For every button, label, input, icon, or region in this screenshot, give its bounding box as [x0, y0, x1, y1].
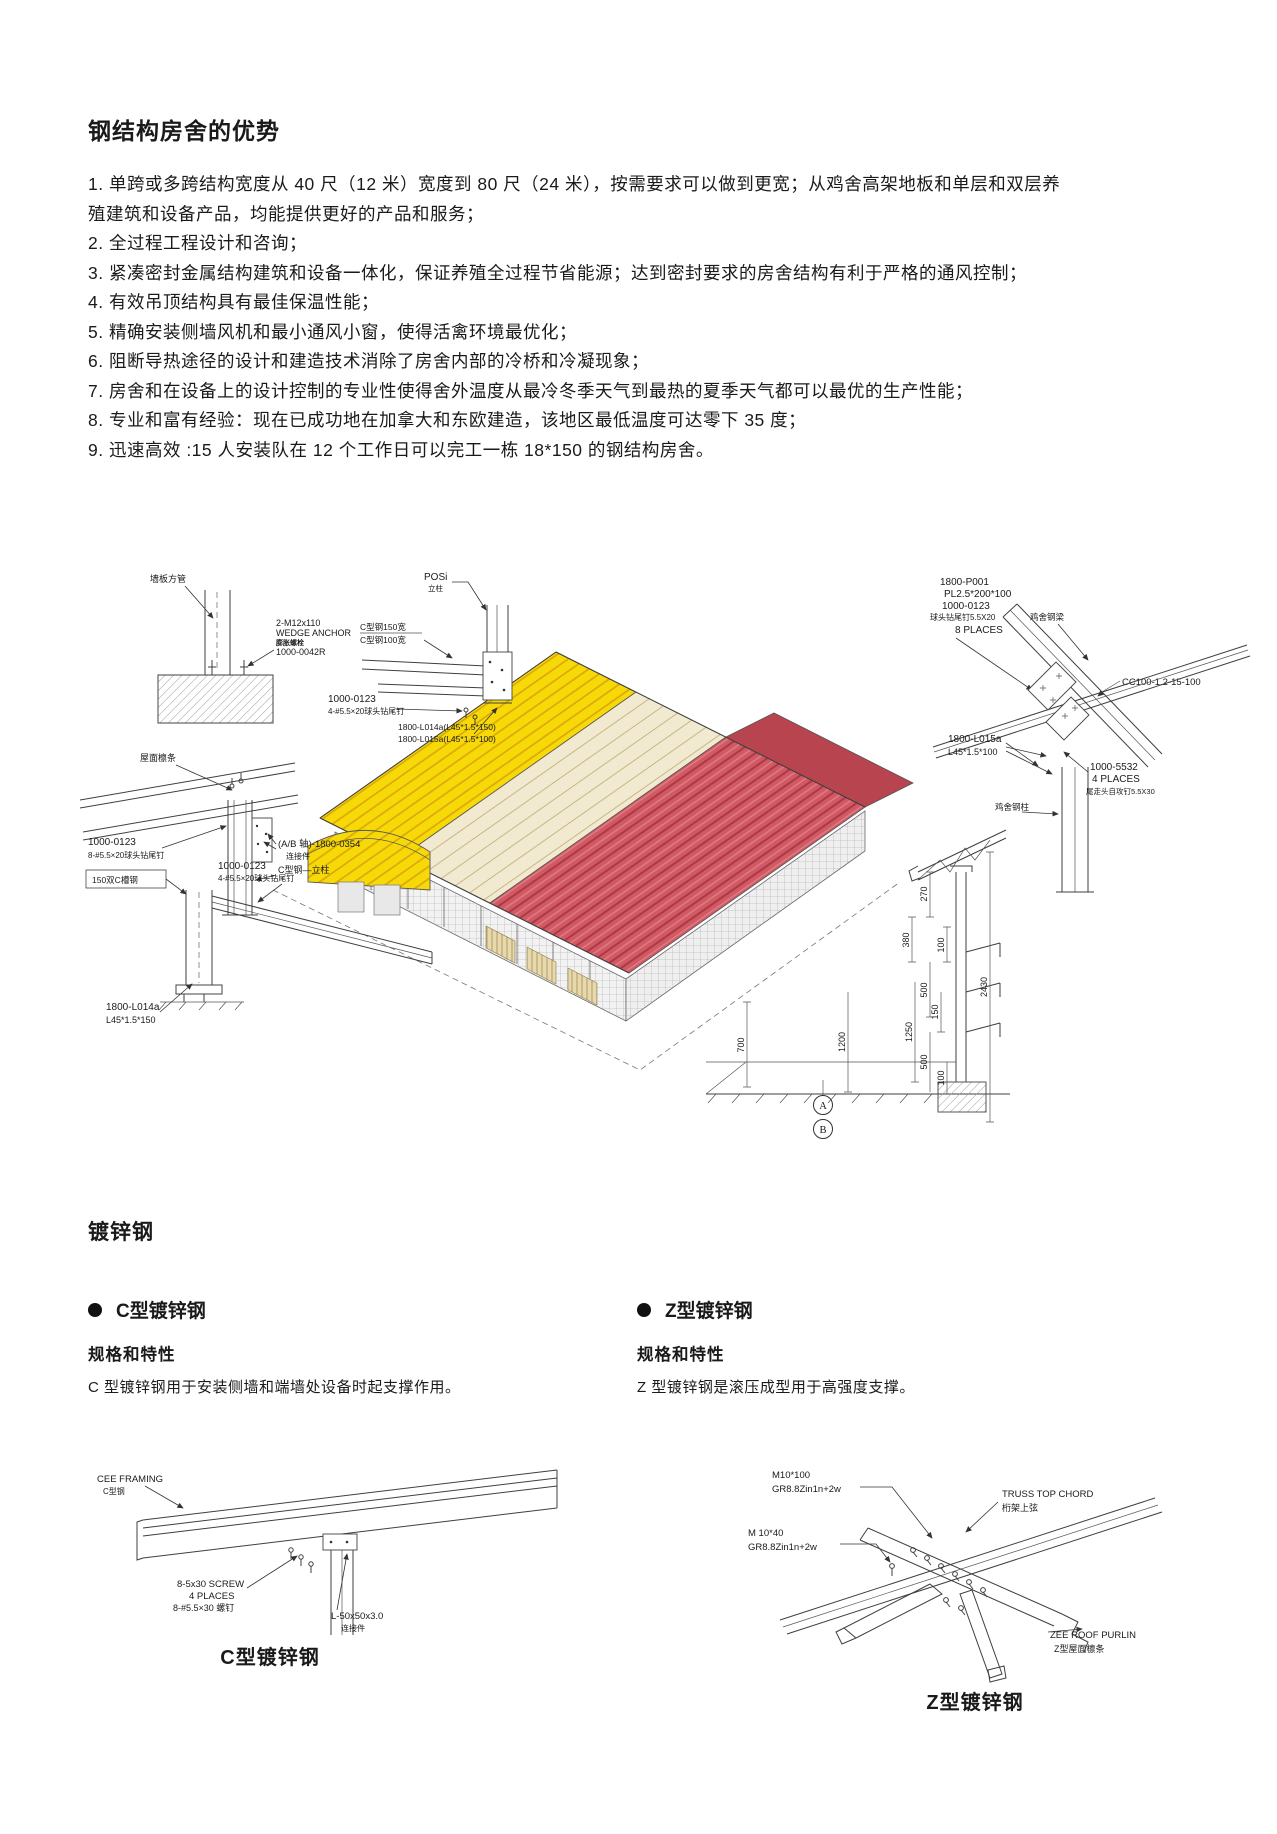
- advantage-item: 7. 房舍和在设备上的设计控制的专业性使得舍外温度从最冷冬季天气到最热的夏季天气…: [88, 377, 1066, 407]
- advantage-item: 3. 紧凑密封金属结构建筑和设备一体化，保证养殖全过程节省能源；达到密封要求的房…: [88, 259, 1066, 289]
- svg-text:A: A: [819, 1101, 827, 1112]
- label-house-column: 鸡舍钢柱: [995, 802, 1030, 812]
- svg-text:4-#5.5×20球头钻尾钉: 4-#5.5×20球头钻尾钉: [218, 873, 294, 883]
- svg-text:B: B: [819, 1125, 826, 1136]
- label-screw-2: 1000-0123: [88, 837, 136, 848]
- advantage-item: 5. 精确安装侧墙风机和最小通风小窗，使得活禽环境最优化；: [88, 318, 1066, 348]
- label-wedge-anchor: 2-M12x110: [276, 618, 320, 628]
- label-roof-purlin: 屋面檩条: [140, 752, 176, 763]
- c-spec-text: C 型镀锌钢用于安装侧墙和端墙处设备时起支撑作用。: [88, 1376, 608, 1397]
- svg-text:100: 100: [936, 1070, 946, 1085]
- label-m10-40: M 10*40: [748, 1528, 783, 1539]
- c-type-drawing: CEE FRAMING C型钢 8-5x30 SCREW 4 PLACES 8-…: [85, 1430, 645, 1660]
- svg-text:C型钢: C型钢: [103, 1486, 125, 1496]
- svg-text:380: 380: [901, 932, 911, 947]
- svg-text:4-#5.5×20球头钻尾钉: 4-#5.5×20球头钻尾钉: [328, 706, 404, 716]
- advantage-item: 1. 单跨或多跨结构宽度从 40 尺（12 米）宽度到 80 尺（24 米），按…: [88, 170, 1066, 229]
- svg-text:270: 270: [919, 886, 929, 901]
- anchor-bolts: [208, 660, 248, 675]
- z-type-title: Z型镀锌钢: [637, 1296, 753, 1323]
- svg-text:1000-0042R: 1000-0042R: [276, 647, 326, 657]
- label-c-screw: 8-5x30 SCREW: [177, 1579, 244, 1590]
- purlin-column-detail: 屋面檩条 1000-0123 8-#5.5×20球头钻尾钉 (A/B 轴)-18…: [80, 752, 360, 915]
- label-posi: POSi: [424, 572, 447, 583]
- label-cc100: CC100-1.2-15-100: [1122, 677, 1201, 688]
- z-spec-text: Z 型镀锌钢是滚压成型用于高强度支撑。: [637, 1376, 1157, 1397]
- svg-text:700: 700: [736, 1037, 746, 1052]
- label-screw-3: 1000-0123: [218, 861, 266, 872]
- svg-text:L45*1.5*150: L45*1.5*150: [106, 1015, 156, 1025]
- svg-text:GR8.8Zin1n+2w: GR8.8Zin1n+2w: [772, 1484, 841, 1495]
- label-c150: C型钢150宽: [360, 622, 406, 632]
- label-m10-100: M10*100: [772, 1470, 810, 1481]
- svg-text:L45*1.5*100: L45*1.5*100: [948, 747, 998, 757]
- label-ab-connector: (A/B 轴)-1800-0354: [278, 838, 360, 850]
- dimension-labels: 270 380 100 500 150 1250 1200 500 100 24…: [736, 886, 989, 1085]
- svg-text:立柱: 立柱: [428, 583, 443, 593]
- svg-text:4 PLACES: 4 PLACES: [1092, 774, 1140, 785]
- screw-symbols: [289, 1548, 313, 1573]
- svg-text:连接件: 连接件: [341, 1623, 365, 1633]
- label-c100: C型钢100宽: [360, 635, 406, 645]
- label-l015a: 1800-L015a: [948, 734, 1002, 745]
- label-angle-1: 1800-L014a(L45*1.5*150): [398, 722, 496, 732]
- svg-text:膨胀螺栓: 膨胀螺栓: [275, 638, 304, 647]
- svg-text:8-#5.5×20球头钻尾钉: 8-#5.5×20球头钻尾钉: [88, 850, 164, 860]
- end-door: [374, 885, 400, 915]
- label-screw-1: 1000-0123: [328, 694, 376, 705]
- svg-text:尾走头自攻钉5.5X30: 尾走头自攻钉5.5X30: [1086, 786, 1155, 796]
- advantages-list: 1. 单跨或多跨结构宽度从 40 尺（12 米）宽度到 80 尺（24 米），按…: [88, 170, 1066, 465]
- advantage-item: 6. 阻断导热途径的设计和建造技术消除了房舍内部的冷桥和冷凝现象；: [88, 347, 1066, 377]
- label-angle-2: 1800-L015a(L45*1.5*100): [398, 734, 496, 744]
- bullet-icon: [88, 1303, 102, 1317]
- svg-text:GR8.8Zin1n+2w: GR8.8Zin1n+2w: [748, 1542, 817, 1553]
- document-page: 钢结构房舍的优势 1. 单跨或多跨结构宽度从 40 尺（12 米）宽度到 80 …: [0, 0, 1277, 1834]
- svg-text:PL2.5*200*100: PL2.5*200*100: [944, 589, 1012, 600]
- grid-axis-markers: A B: [814, 1080, 833, 1139]
- bullet-icon: [637, 1303, 651, 1317]
- advantage-item: 2. 全过程工程设计和咨询；: [88, 229, 1066, 259]
- c-type-title: C型镀锌钢: [88, 1296, 206, 1323]
- advantage-item: 8. 专业和富有经验：现在已成功地在加拿大和东欧建造，该地区最低温度可达零下 3…: [88, 406, 1066, 436]
- svg-text:WEDGE ANCHOR: WEDGE ANCHOR: [276, 628, 352, 638]
- label-truss-top-chord: TRUSS TOP CHORD: [1002, 1489, 1093, 1500]
- label-5532: 1000-5532: [1090, 762, 1138, 773]
- label-wall-tube: 墙板方管: [150, 573, 186, 584]
- advantage-item: 9. 迅速高效 :15 人安装队在 12 个工作日可以完工一栋 18*150 的…: [88, 436, 1066, 466]
- svg-text:150: 150: [930, 1004, 940, 1019]
- page-title: 钢结构房舍的优势: [88, 112, 280, 146]
- advantage-item: 4. 有效吊顶结构具有最佳保温性能；: [88, 288, 1066, 318]
- end-door: [338, 882, 364, 912]
- svg-text:连接件: 连接件: [286, 851, 310, 861]
- svg-text:4 PLACES: 4 PLACES: [189, 1591, 234, 1602]
- z-type-caption: Z型镀锌钢: [858, 1686, 1092, 1715]
- svg-text:500: 500: [919, 1054, 929, 1069]
- svg-text:100: 100: [936, 937, 946, 952]
- svg-text:1000-0123: 1000-0123: [942, 601, 990, 612]
- label-cee-framing: CEE FRAMING: [97, 1474, 163, 1485]
- svg-text:2430: 2430: [979, 977, 989, 997]
- svg-text:桁架上弦: 桁架上弦: [1002, 1502, 1038, 1513]
- label-zee-roof-purlin: ZEE ROOF PURLIN: [1050, 1630, 1136, 1641]
- svg-text:8-#5.5×30 螺钉: 8-#5.5×30 螺钉: [173, 1603, 234, 1613]
- svg-text:8 PLACES: 8 PLACES: [955, 625, 1003, 636]
- z-spec-heading: 规格和特性: [637, 1341, 725, 1365]
- svg-text:1250: 1250: [904, 1022, 914, 1042]
- main-technical-drawing: 墙板方管 2-M12x110 WEDGE ANCHOR 膨胀螺栓 1000-00…: [0, 560, 1277, 1160]
- footing-detail: 墙板方管 2-M12x110 WEDGE ANCHOR 膨胀螺栓 1000-00…: [150, 573, 352, 723]
- svg-text:500: 500: [919, 982, 929, 997]
- label-l014a: 1800-L014a: [106, 1002, 160, 1013]
- svg-text:球头钻尾钉5.5X20: 球头钻尾钉5.5X20: [930, 612, 996, 622]
- svg-text:Z型屋面檩条: Z型屋面檩条: [1054, 1643, 1105, 1654]
- label-p001: 1800-P001: [940, 577, 989, 588]
- label-l-angle: L-50x50x3.0: [331, 1611, 383, 1622]
- c-type-caption: C型镀锌钢: [150, 1641, 390, 1670]
- galvanized-heading: 镀锌钢: [88, 1216, 154, 1246]
- roof-joint-detail: 1800-P001 PL2.5*200*100 1000-0123 球头钻尾钉5…: [930, 577, 1250, 892]
- z-type-drawing: M10*100 GR8.8Zin1n+2w M 10*40 GR8.8Zin1n…: [630, 1442, 1210, 1692]
- label-double-c-channel: 150双C槽钢: [92, 875, 138, 885]
- c-spec-heading: 规格和特性: [88, 1341, 176, 1365]
- svg-text:1200: 1200: [837, 1032, 847, 1052]
- label-house-beam: 鸡舍钢梁: [1030, 612, 1065, 622]
